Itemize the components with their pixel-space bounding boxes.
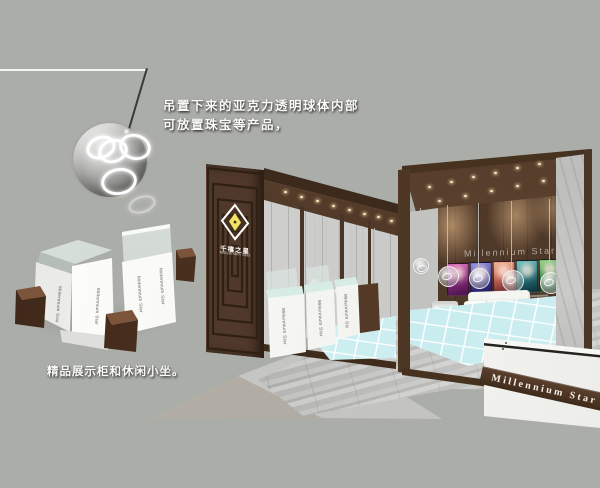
sphere-hanging-string xyxy=(127,68,148,133)
hanging-wire xyxy=(549,199,550,275)
acrylic-display-sphere xyxy=(413,258,429,274)
downlight-icon xyxy=(542,180,545,182)
acrylic-display-sphere xyxy=(502,270,524,292)
acrylic-display-sphere xyxy=(438,266,459,287)
downlight-icon xyxy=(316,200,319,202)
sphere-note-line1: 吊置下来的亚克力透明球体内部 xyxy=(163,95,359,114)
downlight-icon xyxy=(516,167,519,169)
downlight-icon xyxy=(284,191,287,193)
hanging-wire xyxy=(511,201,512,273)
downlight-icon xyxy=(332,205,335,207)
acrylic-display-sphere xyxy=(469,268,490,289)
hanging-wire xyxy=(478,203,479,271)
display-note: 精品展示柜和休闲小坐。 xyxy=(47,363,185,379)
sphere-note-line2: 可放置珠宝等产品， xyxy=(163,114,289,133)
hanging-wire xyxy=(338,222,339,288)
hanging-wire xyxy=(362,226,363,294)
reception-counter-dot xyxy=(505,342,507,344)
reception-counter-dot xyxy=(502,348,504,350)
downlight-icon xyxy=(377,216,380,218)
downlight-icon xyxy=(438,200,441,202)
downlight-icon xyxy=(428,186,431,188)
faint-ring-reflection xyxy=(126,192,158,217)
maze-pattern xyxy=(206,164,264,358)
downlight-icon xyxy=(450,181,453,183)
downlight-icon xyxy=(516,185,519,187)
hanging-wire xyxy=(447,205,448,269)
downlight-icon xyxy=(300,196,303,198)
leader-line-horizontal xyxy=(0,69,147,71)
diamond-logo-icon xyxy=(219,201,251,242)
render-canvas: Millennium Star Millennium Star Millenni… xyxy=(0,0,600,488)
downlight-icon xyxy=(390,220,393,222)
hanging-wire xyxy=(420,208,421,262)
downlight-icon xyxy=(494,172,497,174)
downlight-icon xyxy=(538,163,541,165)
maze-pattern-wall: 千禧之星 Millennium Star xyxy=(206,164,264,358)
downlight-icon xyxy=(363,213,366,215)
downlight-icon xyxy=(472,176,475,178)
downlight-icon xyxy=(464,195,467,197)
downlight-icon xyxy=(490,190,493,192)
downlight-icon xyxy=(348,209,351,211)
